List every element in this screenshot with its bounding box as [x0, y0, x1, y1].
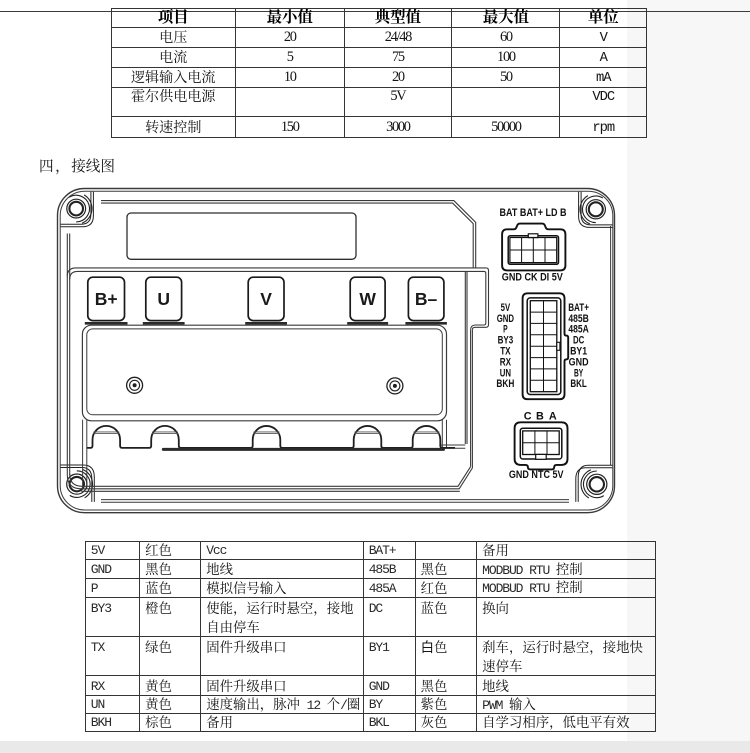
- svg-text:GND NTC 5V: GND NTC 5V: [509, 469, 564, 481]
- svg-text:W: W: [359, 289, 376, 309]
- svg-text:B+: B+: [95, 289, 118, 309]
- svg-text:GND CK DI 5V: GND CK DI 5V: [502, 271, 564, 283]
- svg-text:BKH: BKH: [496, 378, 514, 390]
- svg-text:B: B: [536, 411, 544, 423]
- svg-text:V: V: [260, 289, 272, 309]
- svg-text:B–: B–: [415, 289, 438, 309]
- svg-text:A: A: [549, 411, 557, 423]
- svg-text:BKL: BKL: [570, 378, 587, 390]
- svg-text:BAT BAT+ LD B: BAT BAT+ LD B: [500, 207, 567, 219]
- svg-text:U: U: [157, 289, 170, 309]
- svg-text:C: C: [524, 411, 532, 423]
